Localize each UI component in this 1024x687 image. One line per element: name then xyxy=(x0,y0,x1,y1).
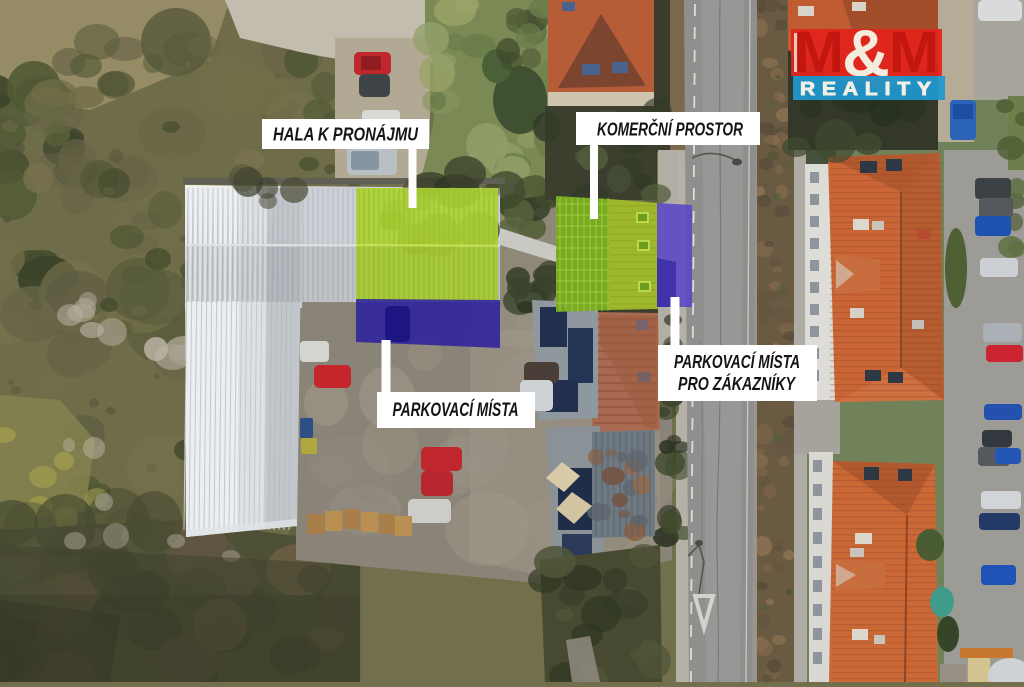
svg-text:PARKOVACÍ MÍSTA: PARKOVACÍ MÍSTA xyxy=(393,399,519,421)
svg-text:KOMERČNÍ PROSTOR: KOMERČNÍ PROSTOR xyxy=(597,119,743,140)
svg-text:PRO ZÁKAZNÍKY: PRO ZÁKAZNÍKY xyxy=(678,373,797,394)
svg-text:REALITY: REALITY xyxy=(800,79,938,99)
svg-text:PARKOVACÍ MÍSTA: PARKOVACÍ MÍSTA xyxy=(674,351,800,372)
svg-text:M: M xyxy=(889,20,939,85)
svg-text:HALA K PRONÁJMU: HALA K PRONÁJMU xyxy=(273,124,419,145)
svg-text:M: M xyxy=(794,20,844,85)
